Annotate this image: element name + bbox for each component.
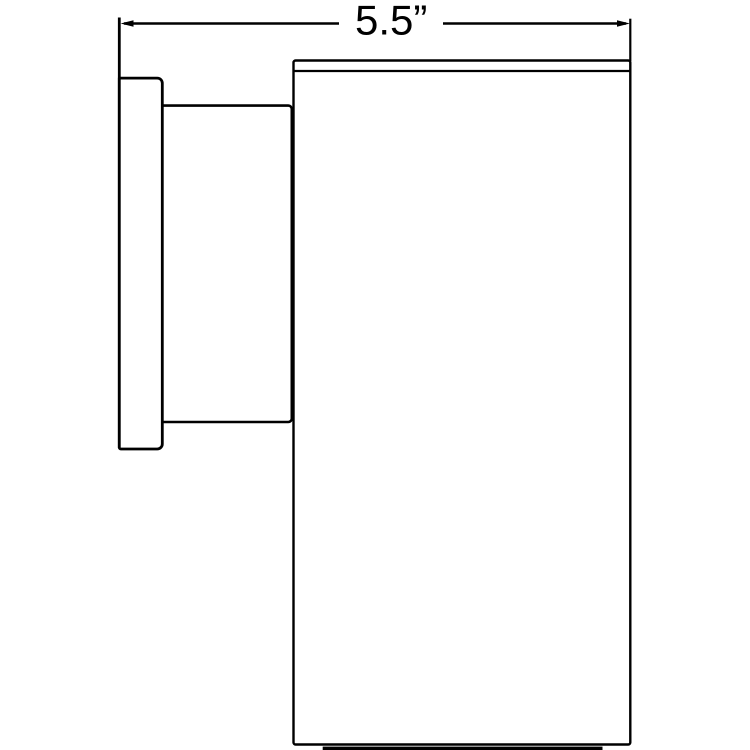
svg-text:5.5”: 5.5” [355,0,427,44]
